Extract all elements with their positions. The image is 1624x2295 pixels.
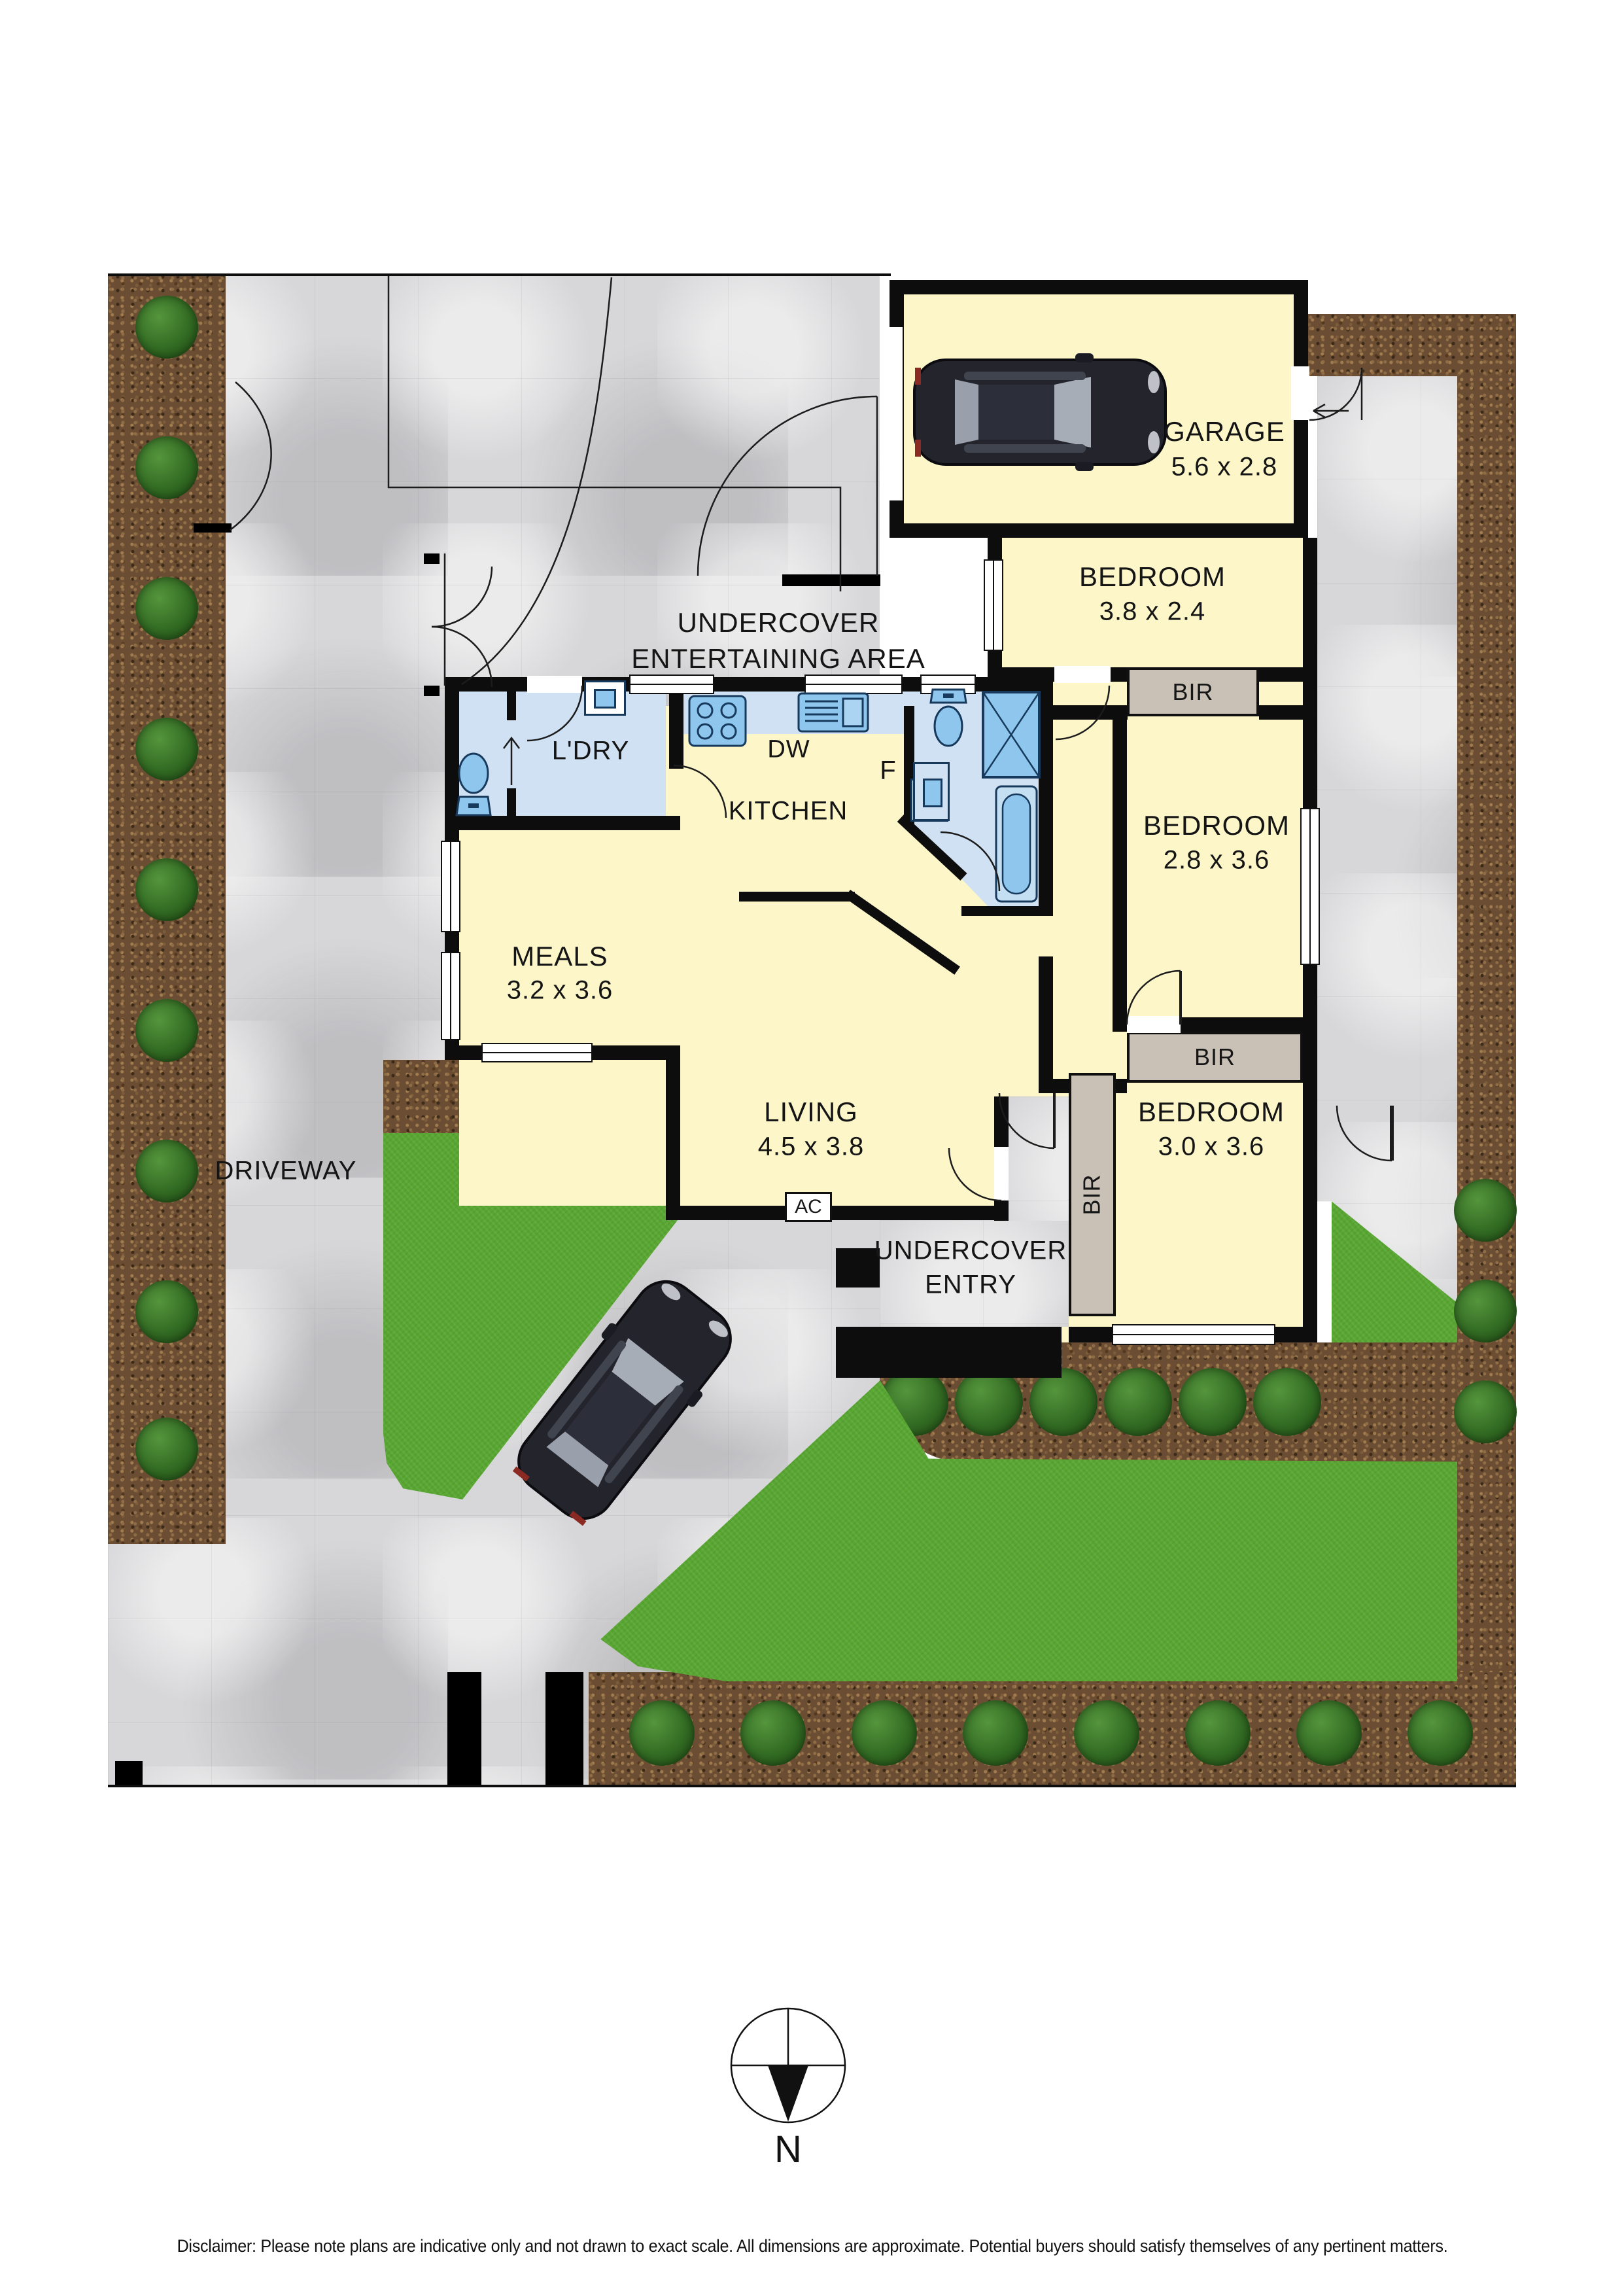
bedroom1-window [984, 559, 1003, 651]
vanity-box [913, 762, 950, 821]
bedroom2-wall-top-right [1259, 705, 1317, 720]
bush [955, 1368, 1023, 1436]
robe-bedroom1: BIR [1127, 667, 1259, 716]
laundry-door-gap [527, 676, 582, 693]
boundary-line-bottom [108, 1785, 1516, 1787]
laundry-name: L'DRY [552, 737, 630, 766]
hall-door-gap [1054, 666, 1111, 683]
meals-window-upper [441, 841, 460, 932]
patio-door-post [424, 686, 440, 696]
robe-bedroom2: BIR [1127, 1032, 1303, 1083]
garage-side-bed [1308, 314, 1457, 376]
bedroom2-window [1300, 808, 1320, 965]
bush [1029, 1368, 1097, 1436]
garage-dims: 5.6 x 2.8 [1171, 453, 1277, 482]
meals-window-lower [441, 952, 460, 1040]
sink-icon [797, 692, 869, 733]
driveway-label: DRIVEWAY [215, 1157, 357, 1186]
bedroom2-wall-left [1113, 720, 1127, 1017]
bush [740, 1700, 806, 1766]
dishwasher-label: DW [767, 736, 810, 764]
bush [1074, 1700, 1139, 1766]
wc-divider-lower [507, 788, 516, 821]
bedroom2-wall-top-left [1053, 705, 1128, 720]
entry-label-1: UNDERCOVER [874, 1236, 1067, 1266]
entry-label-2: ENTRY [925, 1270, 1016, 1300]
bush [1104, 1368, 1172, 1436]
meals-window-front [481, 1043, 593, 1062]
gate-post [447, 1672, 481, 1787]
robe-label: BIR [1172, 678, 1213, 706]
bush [135, 1418, 198, 1480]
robe-label: BIR [1079, 1174, 1106, 1215]
kitchen-name: KITCHEN [729, 797, 848, 826]
robe-label: BIR [1194, 1043, 1235, 1071]
laundry-window [629, 674, 714, 694]
hall-wall-lower [1039, 956, 1053, 1093]
bedroom1-name: BEDROOM [1079, 561, 1226, 593]
garage-roller-door [886, 327, 903, 500]
car-in-garage [909, 353, 1171, 471]
porch-step [836, 1248, 880, 1288]
bathtub-icon [995, 785, 1038, 903]
garage-side-door-gap [1291, 366, 1309, 420]
bush [135, 1280, 198, 1343]
garage-wall-bottom [890, 523, 1308, 538]
shower-icon [982, 691, 1041, 779]
entry-porch-side [1002, 1096, 1073, 1221]
robe-bedroom3: BIR [1069, 1073, 1116, 1316]
ac-unit: AC [785, 1192, 832, 1222]
fridge-label: F [880, 756, 896, 786]
bathroom-wall-bottom [961, 906, 1048, 916]
side-path [1317, 376, 1457, 1342]
ac-label: AC [795, 1196, 822, 1218]
bedroom3-window [1112, 1324, 1275, 1345]
north-label: N [774, 2128, 802, 2171]
bush [1408, 1700, 1473, 1766]
kitchen-living-wall [739, 892, 855, 902]
bedroom3-dims: 3.0 x 3.6 [1158, 1132, 1264, 1162]
bush [1454, 1380, 1517, 1443]
bush [1454, 1280, 1517, 1342]
wc-divider-upper [507, 692, 516, 720]
bedroom2-dims: 2.8 x 3.6 [1164, 846, 1270, 875]
toilet-icon [454, 751, 493, 818]
corner-post [115, 1761, 143, 1787]
bush [135, 577, 198, 640]
stove-icon [688, 695, 747, 747]
garage-name: GARAGE [1164, 416, 1285, 447]
porch-edge [836, 1327, 1062, 1378]
laundry-trough [584, 680, 626, 716]
bush [135, 718, 198, 780]
bottom-garden-bed [589, 1672, 1516, 1787]
gate-post [545, 1672, 583, 1787]
bush [629, 1700, 695, 1766]
bush [963, 1700, 1028, 1766]
bush [1185, 1700, 1251, 1766]
bedroom1-dims: 3.8 x 2.4 [1099, 597, 1205, 627]
bush [135, 999, 198, 1062]
hall-wall-upper [1039, 686, 1053, 916]
bush [1454, 1179, 1517, 1242]
entertaining-label-2: ENTERTAINING AREA [631, 643, 925, 674]
boundary-line-top [108, 273, 891, 276]
meals-living-jog [666, 1045, 680, 1220]
bush [135, 296, 198, 359]
laundry-wall-right [669, 692, 683, 769]
bedroom2-door-gap [1127, 1016, 1181, 1033]
bush [852, 1700, 917, 1766]
laundry-wall-bottom [445, 816, 680, 830]
kitchen-window [804, 674, 903, 694]
north-compass-icon [726, 2003, 850, 2128]
meals-name: MEALS [511, 941, 608, 972]
bedroom3-name: BEDROOM [1138, 1096, 1285, 1128]
bush [1253, 1368, 1321, 1436]
bush [1296, 1700, 1362, 1766]
disclaimer-text: Disclaimer: Please note plans are indica… [177, 2236, 1447, 2256]
bush [135, 1140, 198, 1202]
garage-wall-top [890, 280, 1308, 294]
bush [1179, 1368, 1247, 1436]
right-garden-bed [1457, 314, 1516, 1787]
meals-dims: 3.2 x 3.6 [507, 976, 613, 1006]
living-wall-front [680, 1206, 1009, 1220]
floor-plan-page: BIR BIR BIR [0, 0, 1624, 2295]
entertaining-label-1: UNDERCOVER [678, 607, 880, 639]
patio-door-post [424, 553, 440, 564]
entry-door-gap [994, 1147, 1009, 1200]
living-name: LIVING [764, 1096, 858, 1128]
patio-threshold [782, 574, 880, 586]
bush [135, 858, 198, 921]
left-gate-threshold [194, 523, 232, 533]
toilet-icon [929, 688, 968, 754]
bedroom2-name: BEDROOM [1143, 810, 1290, 841]
living-dims: 4.5 x 3.8 [758, 1132, 864, 1162]
bush [135, 436, 198, 499]
